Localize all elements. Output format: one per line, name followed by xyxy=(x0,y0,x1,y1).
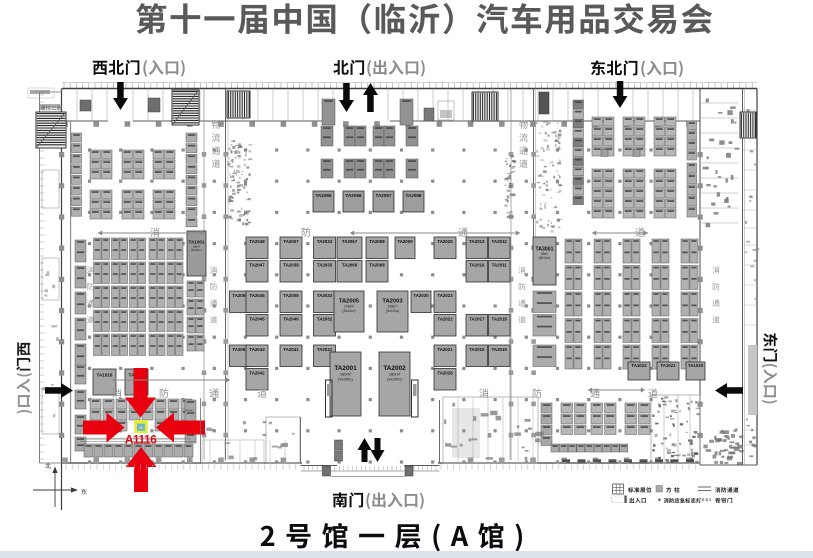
svg-text:TA2011: TA2011 xyxy=(492,263,508,268)
svg-text:TA2047: TA2047 xyxy=(249,263,265,268)
svg-text:TA2005: TA2005 xyxy=(339,299,360,305)
svg-text:TA2067: TA2067 xyxy=(342,239,358,244)
svg-text:TA2033: TA2033 xyxy=(317,293,333,298)
svg-text:TA2032: TA2032 xyxy=(317,317,333,322)
svg-text:TA2069: TA2069 xyxy=(369,239,385,244)
svg-text:TA2019: TA2019 xyxy=(492,347,508,352)
svg-text:108m²: 108m² xyxy=(387,305,398,309)
svg-text:TA2041: TA2041 xyxy=(283,347,299,352)
svg-text:TA2056: TA2056 xyxy=(345,193,361,198)
svg-text:TA2016: TA2016 xyxy=(469,263,485,268)
svg-text:(9x20m): (9x20m) xyxy=(387,377,402,382)
svg-text:TA2068: TA2068 xyxy=(369,263,385,268)
svg-text:TA2034: TA2034 xyxy=(317,239,333,244)
svg-text:TA2007: TA2007 xyxy=(283,239,299,244)
svg-text:108m²: 108m² xyxy=(344,305,355,309)
svg-text:TA2055: TA2055 xyxy=(315,193,331,198)
svg-text:TA2045: TA2045 xyxy=(249,317,265,322)
svg-text:TA2025: TA2025 xyxy=(437,239,453,244)
svg-text:TA2008: TA2008 xyxy=(283,293,299,298)
svg-text:TA1022: TA1022 xyxy=(631,363,647,368)
svg-text:(8x12m): (8x12m) xyxy=(539,256,551,260)
svg-text:TA2021: TA2021 xyxy=(437,347,453,352)
svg-text:TA2013: TA2013 xyxy=(469,239,485,244)
svg-text:TA2048: TA2048 xyxy=(249,239,265,244)
svg-text:TA2018: TA2018 xyxy=(492,317,508,322)
svg-text:TA2038: TA2038 xyxy=(283,263,299,268)
svg-text:(9x12m): (9x12m) xyxy=(386,309,399,313)
svg-text:TA2030: TA2030 xyxy=(413,293,429,298)
svg-text:TA2010: TA2010 xyxy=(469,347,485,352)
svg-text:TA2031: TA2031 xyxy=(317,347,333,352)
svg-text:TA2040: TA2040 xyxy=(283,317,299,322)
svg-text:TA2022: TA2022 xyxy=(437,317,453,322)
svg-text:A1116: A1116 xyxy=(125,433,157,447)
svg-text:TA2042: TA2042 xyxy=(249,371,265,376)
svg-text:TA2046: TA2046 xyxy=(249,293,265,298)
svg-text:(8x12m): (8x12m) xyxy=(191,248,202,252)
svg-text:TA1020: TA1020 xyxy=(688,363,704,368)
svg-text:TA2009: TA2009 xyxy=(397,239,413,244)
svg-text:TA1021: TA1021 xyxy=(660,363,676,368)
svg-text:TA2012: TA2012 xyxy=(492,239,508,244)
svg-text:(9x20m): (9x20m) xyxy=(338,377,353,382)
svg-text:TA2057: TA2057 xyxy=(375,193,391,198)
svg-text:TA2026: TA2026 xyxy=(437,371,453,376)
svg-text:TA2066: TA2066 xyxy=(342,263,358,268)
svg-text:TA2043: TA2043 xyxy=(249,347,265,352)
svg-text:TA2017: TA2017 xyxy=(469,317,485,322)
svg-text:TA2023: TA2023 xyxy=(437,293,453,298)
svg-text:(9x12m): (9x12m) xyxy=(342,309,355,313)
svg-text:TA2003: TA2003 xyxy=(382,299,403,305)
svg-text:TA2035: TA2035 xyxy=(317,263,333,268)
svg-text:TA1016: TA1016 xyxy=(96,372,112,377)
svg-text:TA2058: TA2058 xyxy=(405,193,421,198)
